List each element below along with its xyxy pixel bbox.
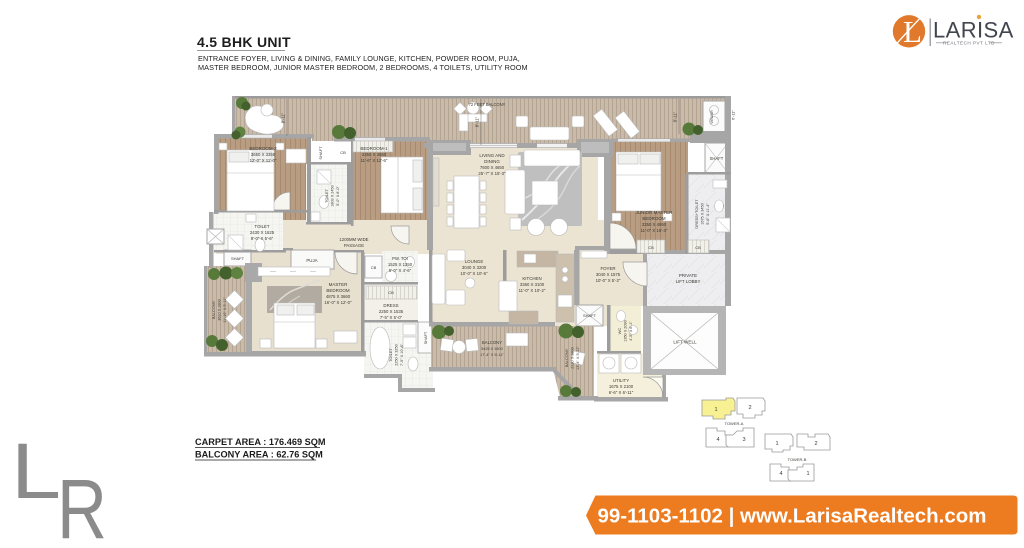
svg-text:BALCONY: BALCONY <box>211 300 216 319</box>
svg-text:5'-6" X 11'-4": 5'-6" X 11'-4" <box>706 203 710 225</box>
svg-text:1675 X 2100: 1675 X 2100 <box>609 384 634 389</box>
svg-text:7'-5" X 10'-8": 7'-5" X 10'-8" <box>400 343 404 366</box>
svg-text:3650 X 3350: 3650 X 3350 <box>251 152 276 157</box>
svg-text:SHAFT: SHAFT <box>318 146 323 160</box>
svg-text:SHAFT: SHAFT <box>231 256 245 261</box>
svg-text:SHAFT: SHAFT <box>710 156 724 161</box>
svg-text:6'-6" X 6'-11": 6'-6" X 6'-11" <box>609 390 634 395</box>
svg-text:2: 2 <box>748 405 751 411</box>
svg-text:1200MM WIDE: 1200MM WIDE <box>339 237 368 242</box>
svg-text:10'-0" X 10'-6": 10'-0" X 10'-6" <box>460 271 488 276</box>
svg-text:LIVING AND: LIVING AND <box>479 153 505 158</box>
svg-text:PW. TOI: PW. TOI <box>392 256 408 261</box>
svg-text:3610 X 1800: 3610 X 1800 <box>218 299 222 321</box>
svg-text:3040 X 3200: 3040 X 3200 <box>462 265 487 270</box>
svg-text:SHAFT: SHAFT <box>424 331 428 344</box>
svg-text:5'-0" X 4'-6": 5'-0" X 4'-6" <box>389 268 412 273</box>
svg-text:3360 X 3100: 3360 X 3100 <box>520 282 545 287</box>
svg-text:TOWER-A: TOWER-A <box>725 421 744 426</box>
svg-text:4: 4 <box>716 437 719 443</box>
svg-text:CB: CB <box>371 265 377 270</box>
svg-text:CB: CB <box>388 290 394 295</box>
svg-text:1525 X 1350: 1525 X 1350 <box>388 262 413 267</box>
svg-text:JUNIOR MASTER: JUNIOR MASTER <box>636 210 674 215</box>
svg-text:7'-5" X 5'-0": 7'-5" X 5'-0" <box>380 315 403 320</box>
svg-text:DRESS: DRESS <box>383 303 398 308</box>
svg-text:BEDROOM-2: BEDROOM-2 <box>249 146 277 151</box>
svg-text:4875 X 3660: 4875 X 3660 <box>326 294 351 299</box>
svg-text:8'-0" X 5'-6": 8'-0" X 5'-6" <box>251 236 274 241</box>
svg-text:BEDROOM: BEDROOM <box>326 288 350 293</box>
svg-text:TOILET: TOILET <box>388 347 393 361</box>
svg-text:99-1103-1102 | www.LarisaRealt: 99-1103-1102 | www.LarisaRealtech.com <box>598 505 987 528</box>
svg-text:8'-11": 8'-11" <box>281 112 286 123</box>
svg-text:1: 1 <box>775 441 778 447</box>
svg-text:1: 1 <box>806 471 809 477</box>
svg-text:1803 X 2450: 1803 X 2450 <box>331 185 335 207</box>
svg-text:13'-4" X 5'-11": 13'-4" X 5'-11" <box>576 346 580 370</box>
svg-text:2250 X 1535: 2250 X 1535 <box>379 309 404 314</box>
svg-text:DRESS+TOILET: DRESS+TOILET <box>694 199 699 229</box>
svg-text:10'-0" X 5'-2": 10'-0" X 5'-2" <box>596 278 621 283</box>
svg-text:1350 X 2090: 1350 X 2090 <box>624 320 628 342</box>
svg-text:BALCONY: BALCONY <box>564 348 569 367</box>
svg-text:4.5 BHK UNIT: 4.5 BHK UNIT <box>197 34 291 50</box>
svg-text:3040 X 1575: 3040 X 1575 <box>596 272 621 277</box>
svg-text:72 FEET BALCONY: 72 FEET BALCONY <box>469 102 506 107</box>
svg-text:BEDROOM: BEDROOM <box>642 216 666 221</box>
svg-text:UTILITY: UTILITY <box>613 378 629 383</box>
svg-text:2: 2 <box>814 441 817 447</box>
svg-text:PUJA: PUJA <box>306 258 317 263</box>
svg-text:SHAFT: SHAFT <box>583 313 597 318</box>
svg-text:LARISA: LARISA <box>933 18 1014 43</box>
svg-text:5'-0" X 8'-0": 5'-0" X 8'-0" <box>336 185 340 205</box>
svg-text:2430 X 1625: 2430 X 1625 <box>250 230 275 235</box>
svg-text:25'-7" X 15'-3": 25'-7" X 15'-3" <box>478 171 506 176</box>
svg-text:BALCONY: BALCONY <box>482 340 502 345</box>
svg-text:LIFT WELL: LIFT WELL <box>673 340 697 345</box>
svg-text:CB: CB <box>340 150 346 155</box>
svg-text:17'-4" X 5'-11": 17'-4" X 5'-11" <box>480 353 504 357</box>
svg-text:3: 3 <box>742 437 745 443</box>
svg-text:MASTER: MASTER <box>329 282 349 287</box>
svg-text:1: 1 <box>714 407 717 413</box>
svg-text:2130 X 1800: 2130 X 1800 <box>571 347 575 369</box>
svg-text:DINING: DINING <box>484 159 500 164</box>
svg-text:KITCHEN: KITCHEN <box>522 276 541 281</box>
svg-text:LOUNGE: LOUNGE <box>465 259 484 264</box>
svg-text:11'-0" X 16'-3": 11'-0" X 16'-3" <box>641 228 668 233</box>
svg-text:CB: CB <box>648 245 654 250</box>
svg-text:TOILET: TOILET <box>255 224 270 229</box>
svg-text:2250 X 3250: 2250 X 3250 <box>395 344 399 366</box>
svg-text:1675 X 3450: 1675 X 3450 <box>701 203 705 225</box>
svg-text:R: R <box>57 462 107 548</box>
svg-text:16'-0" X 12'-0": 16'-0" X 12'-0" <box>324 300 352 305</box>
svg-text:CB: CB <box>695 245 701 250</box>
svg-text:TOWER-B: TOWER-B <box>788 457 807 462</box>
svg-text:ENTRANCE FOYER, LIVING & DININ: ENTRANCE FOYER, LIVING & DINING, FAMILY … <box>198 54 520 63</box>
svg-text:8'-11": 8'-11" <box>673 111 678 122</box>
svg-text:6'-11": 6'-11" <box>731 109 736 119</box>
svg-text:LIFT LOBBY: LIFT LOBBY <box>676 279 701 284</box>
svg-text:PRIVATE: PRIVATE <box>679 273 697 278</box>
svg-text:MASTER BEDROOM, JUNIOR MASTER: MASTER BEDROOM, JUNIOR MASTER BEDROOM, 2… <box>198 63 528 72</box>
svg-text:11'-6" X 12'-6": 11'-6" X 12'-6" <box>361 158 388 163</box>
svg-text:11'-0" X 10'-2": 11'-0" X 10'-2" <box>519 288 546 293</box>
svg-text:3350 X 4950: 3350 X 4950 <box>642 222 667 227</box>
svg-text:TOILET: TOILET <box>324 188 329 202</box>
svg-text:VIEWAIR: VIEWAIR <box>710 110 714 124</box>
svg-text:WC: WC <box>617 328 622 335</box>
svg-text:CARPET AREA : 176.469 SQM: CARPET AREA : 176.469 SQM <box>195 437 326 447</box>
svg-text:7600 X 4650: 7600 X 4650 <box>480 165 505 170</box>
svg-text:BALCONY AREA : 62.76 SQM: BALCONY AREA : 62.76 SQM <box>195 450 323 460</box>
svg-text:3350 X 3650: 3350 X 3650 <box>362 152 387 157</box>
svg-text:4: 4 <box>779 471 782 477</box>
svg-text:5425 X 1800: 5425 X 1800 <box>481 347 503 351</box>
svg-text:8'-11": 8'-11" <box>475 116 480 127</box>
svg-text:FOYER: FOYER <box>600 266 615 271</box>
svg-text:PASSAGE: PASSAGE <box>344 243 364 248</box>
svg-text:BEDROOM-1: BEDROOM-1 <box>360 146 388 151</box>
svg-text:4'-5" X 6'-1": 4'-5" X 6'-1" <box>629 320 633 340</box>
svg-text:REALTECH PVT LTD: REALTECH PVT LTD <box>943 41 995 46</box>
svg-text:L: L <box>11 426 61 515</box>
svg-text:11'-10" X 5'-11": 11'-10" X 5'-11" <box>223 297 227 323</box>
svg-text:12'-0" X 11'-0": 12'-0" X 11'-0" <box>250 158 277 163</box>
